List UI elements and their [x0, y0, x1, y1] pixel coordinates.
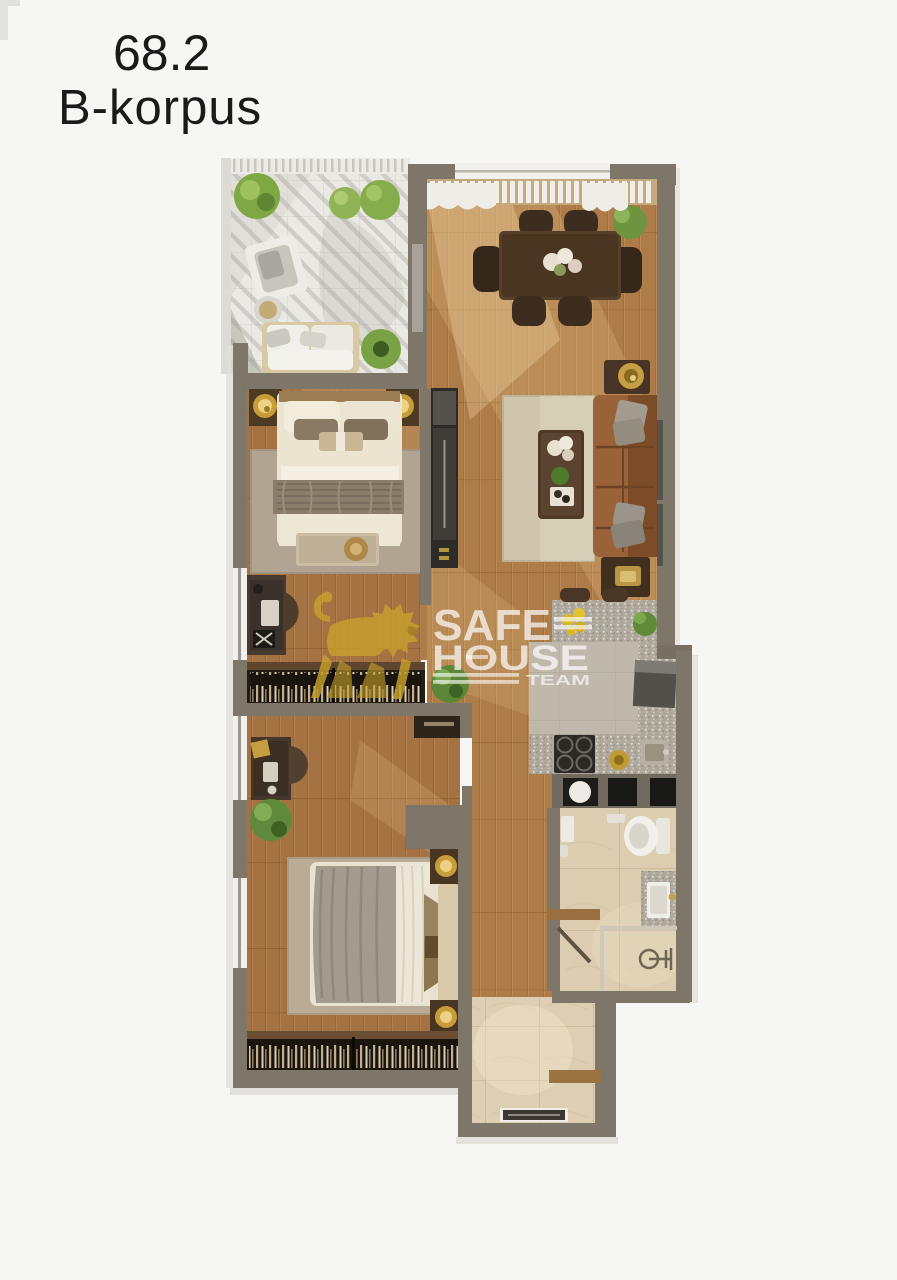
svg-text:68.2: 68.2 [113, 25, 210, 81]
svg-text:B-korpus: B-korpus [58, 81, 262, 135]
svg-text:TEAM: TEAM [526, 672, 590, 689]
